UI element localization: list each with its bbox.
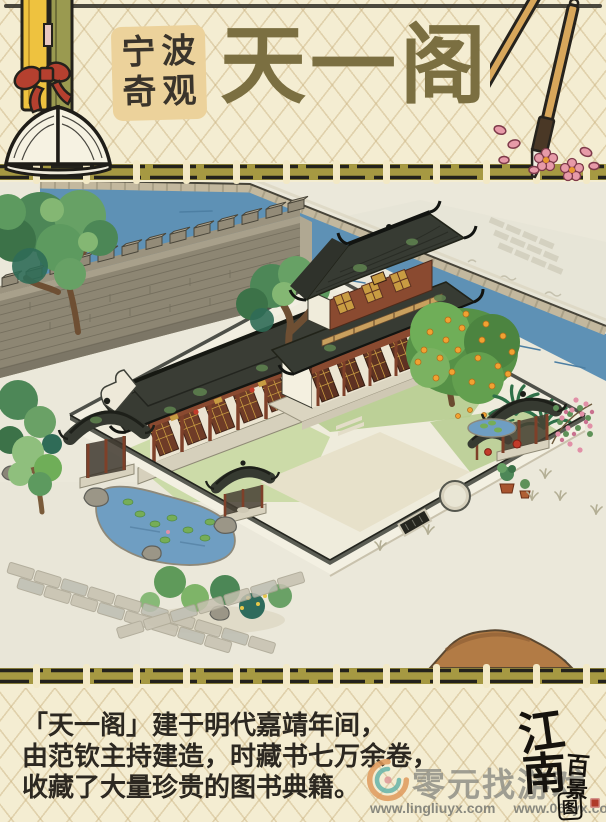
page-title: 天一阁 [220,10,510,122]
bamboo-band-bottom [0,664,606,688]
red-lantern [485,449,492,456]
jiangnan-baijingtu-logo: 江 南 百 景 图 [496,688,606,822]
open-book-scroll-icon [0,0,128,180]
logo-seal [590,798,600,808]
pink-flowers [535,149,584,181]
calligraphy-brushes-icon [490,0,606,186]
badge-line1: 宁波 [115,33,202,73]
badge-line2: 奇观 [116,73,203,113]
swirl-logo-icon [366,758,410,802]
tianyige-poster: 宁波 奇观 天一阁 [0,0,606,822]
watermark-url-left: www.lingliuyx.com [370,800,496,816]
logo-char-tu: 图 [557,791,582,820]
red-lantern [513,440,521,448]
tianyige-scene-illustration [0,182,606,668]
header: 宁波 奇观 天一阁 [0,0,606,163]
description-line-1: 「天一阁」建于明代嘉靖年间， [22,710,462,741]
footer: 「天一阁」建于明代嘉靖年间， 由范钦主持建造，时藏书七万余卷， 收藏了大量珍贵的… [0,688,606,822]
